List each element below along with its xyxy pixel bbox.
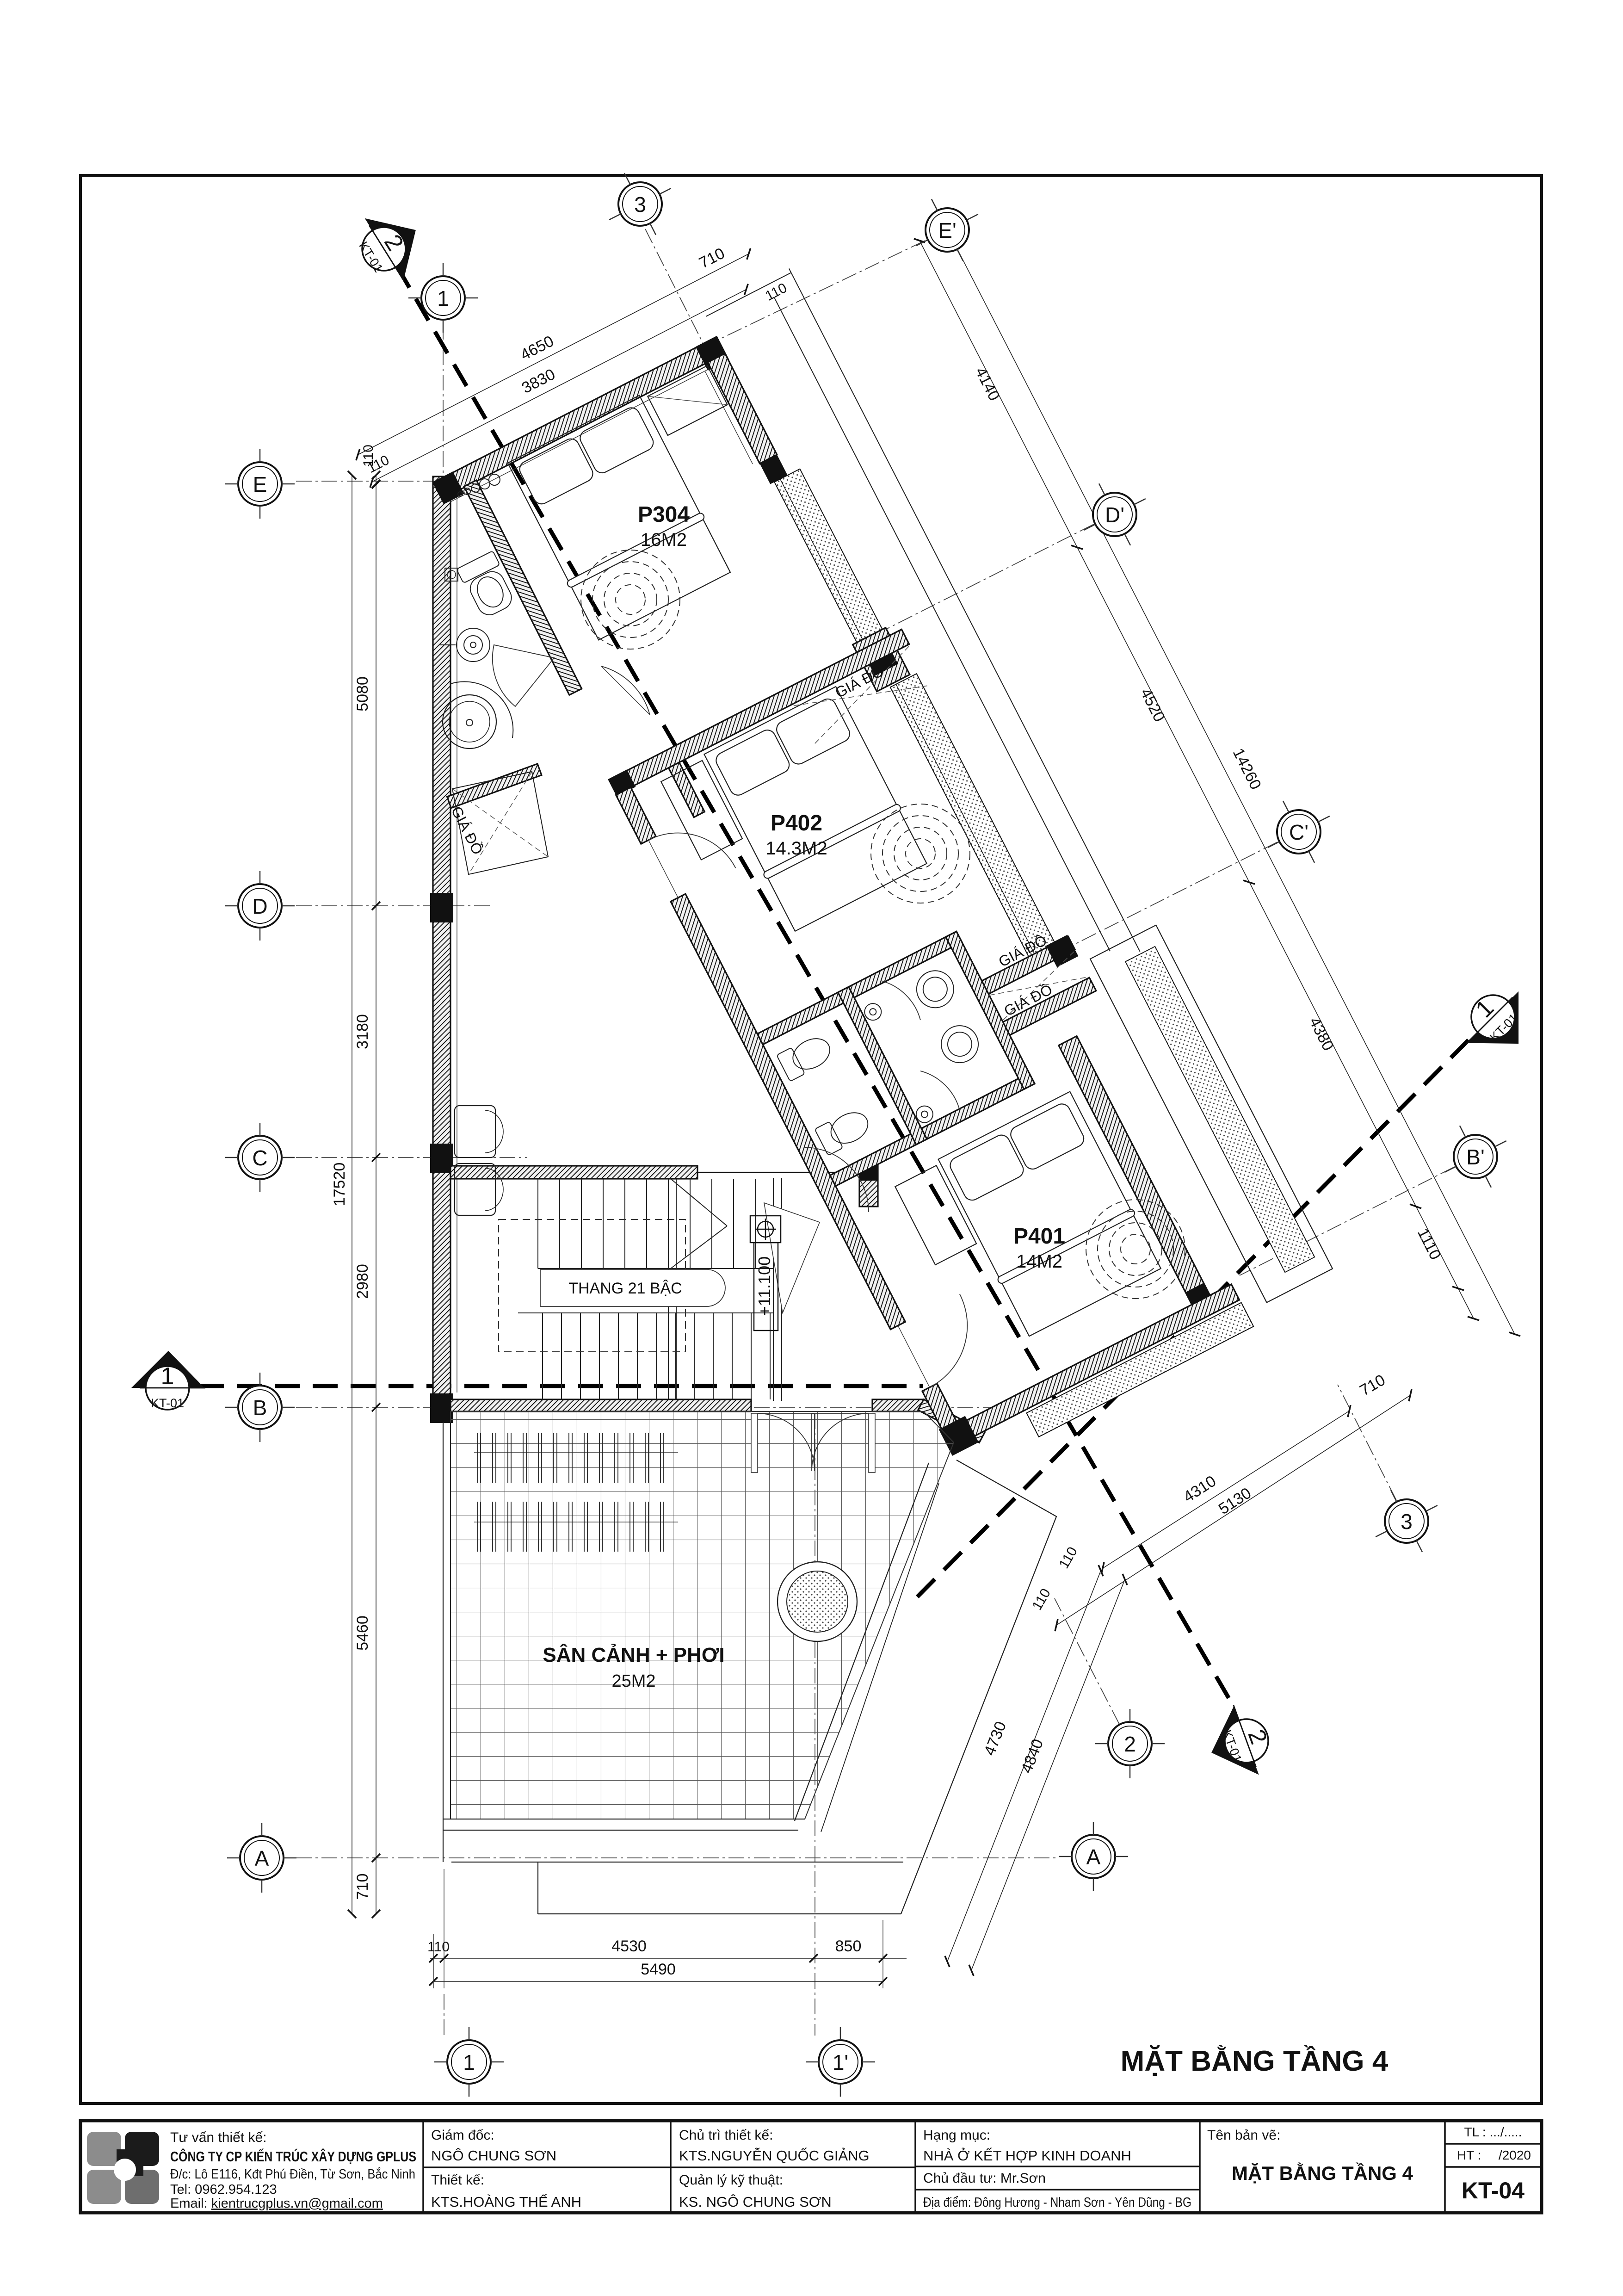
svg-text:THANG 21 BẬC: THANG 21 BẬC [568,1280,682,1297]
svg-text:+11.100: +11.100 [755,1256,774,1316]
svg-text:HT :: HT : [1457,2148,1481,2162]
svg-text:710: 710 [354,1874,371,1900]
svg-text:3: 3 [634,192,646,217]
svg-text:SÂN CẢNH + PHƠI: SÂN CẢNH + PHƠI [543,1643,724,1666]
svg-text:B: B [253,1396,267,1420]
svg-text:1: 1 [463,2050,475,2074]
svg-text:3: 3 [1401,1510,1413,1534]
svg-text:E': E' [938,218,956,242]
svg-text:B': B' [1466,1145,1484,1169]
svg-text:KTS.NGUYỄN QUỐC GIẢNG: KTS.NGUYỄN QUỐC GIẢNG [679,2147,870,2164]
svg-text:P401: P401 [1013,1224,1065,1249]
svg-text:P402: P402 [771,811,822,835]
svg-text:/2020: /2020 [1499,2148,1531,2162]
svg-text:17520: 17520 [331,1163,348,1207]
svg-text:A: A [255,1846,269,1870]
svg-text:14M2: 14M2 [1016,1251,1062,1272]
svg-text:5080: 5080 [354,676,371,712]
svg-text:KS. NGÔ CHUNG SƠN: KS. NGÔ CHUNG SƠN [679,2194,832,2210]
svg-text:D: D [252,894,267,918]
svg-text:NHÀ Ở KẾT HỢP KINH DOANH: NHÀ Ở KẾT HỢP KINH DOANH [923,2147,1131,2164]
svg-text:5460: 5460 [354,1615,371,1651]
svg-text:3180: 3180 [354,1014,371,1049]
svg-text:MẶT BẰNG TẦNG 4: MẶT BẰNG TẦNG 4 [1232,2162,1413,2184]
svg-text:Chủ đầu tư: Mr.Sơn: Chủ đầu tư: Mr.Sơn [923,2171,1046,2186]
svg-text:Chủ trì thiết kế:: Chủ trì thiết kế: [679,2128,773,2143]
svg-text:16M2: 16M2 [641,530,687,550]
svg-text:4530: 4530 [611,1937,647,1955]
svg-text:2: 2 [1124,1732,1136,1756]
svg-text:1': 1' [833,2050,848,2074]
svg-text:P304: P304 [638,502,690,527]
svg-text:Giám đốc:: Giám đốc: [431,2128,494,2143]
svg-text:D': D' [1105,503,1124,527]
svg-text:Hạng mục:: Hạng mục: [923,2128,990,2143]
svg-text:E: E [253,472,267,496]
svg-text:Địa điểm: Đông Hương - Nham Sơ: Địa điểm: Đông Hương - Nham Sơn - Yên Dũ… [923,2195,1191,2210]
svg-text:850: 850 [835,1937,862,1955]
svg-text:1: 1 [437,286,449,310]
svg-text:Thiết kế:: Thiết kế: [431,2172,484,2188]
svg-text:C': C' [1289,820,1308,844]
svg-text:NGÔ CHUNG SƠN: NGÔ CHUNG SƠN [431,2147,556,2164]
svg-text:2980: 2980 [354,1264,371,1299]
svg-text:110: 110 [427,1939,450,1955]
svg-text:5490: 5490 [641,1961,676,1978]
svg-text:Email: kientrucgplus.vn@gmail.: Email: kientrucgplus.vn@gmail.com [170,2196,383,2211]
svg-text:KTS.HOÀNG THẾ ANH: KTS.HOÀNG THẾ ANH [431,2194,581,2210]
svg-text:KT-04: KT-04 [1462,2178,1524,2203]
svg-text:Quản lý kỹ thuật:: Quản lý kỹ thuật: [679,2172,783,2188]
svg-text:25M2: 25M2 [611,1671,655,1691]
svg-text:14.3M2: 14.3M2 [765,838,827,859]
svg-text:C: C [252,1146,267,1170]
svg-text:Tel: 0962.954.123: Tel: 0962.954.123 [170,2182,277,2197]
svg-text:MẶT BẰNG TẦNG 4: MẶT BẰNG TẦNG 4 [1121,2045,1388,2077]
svg-text:A: A [1086,1845,1101,1869]
svg-text:CÔNG TY CP KIẾN TRÚC XÂY DỰNG: CÔNG TY CP KIẾN TRÚC XÂY DỰNG GPLUS [170,2148,416,2165]
svg-text:Tên bản vẽ:: Tên bản vẽ: [1207,2128,1280,2143]
svg-text:Đ/c: Lô E116, Kđt Phú Điền, Từ: Đ/c: Lô E116, Kđt Phú Điền, Từ Sơn, Bắc … [170,2166,415,2182]
svg-text:Tư vấn thiết kế:: Tư vấn thiết kế: [170,2130,267,2145]
svg-text:TL : .../.....: TL : .../..... [1464,2125,1522,2139]
svg-text:KT-01: KT-01 [151,1396,184,1410]
svg-text:1: 1 [161,1363,174,1390]
